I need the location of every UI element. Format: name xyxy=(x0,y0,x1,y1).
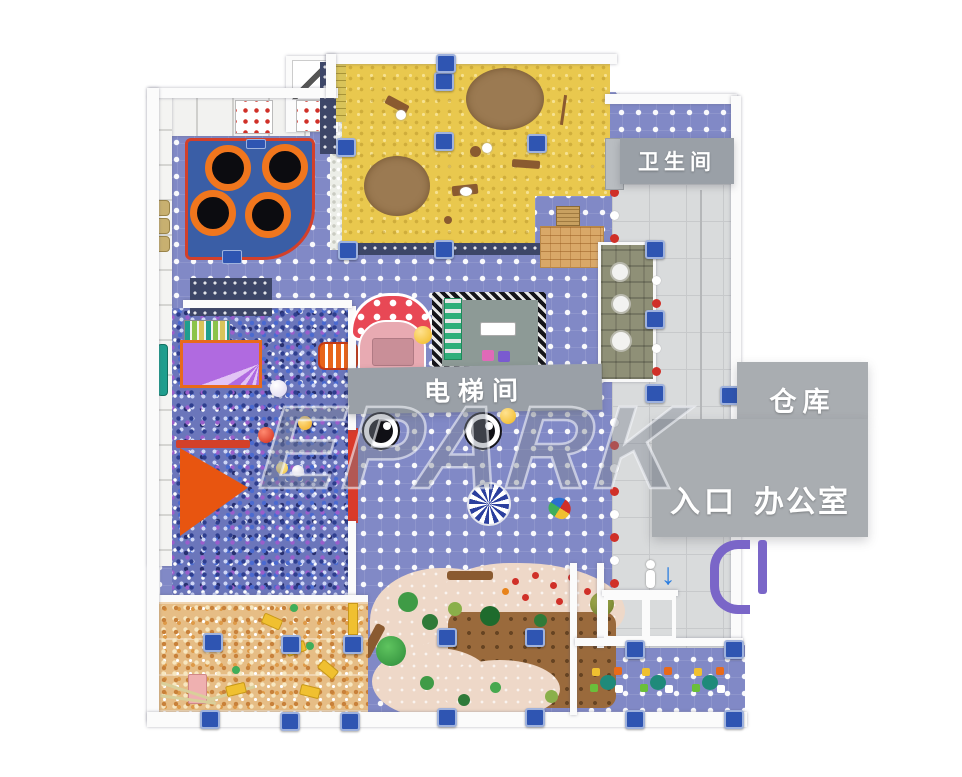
top-wall-right xyxy=(605,94,737,104)
yellow-chick xyxy=(500,408,516,424)
pillar xyxy=(437,628,457,647)
entrance-room-2 xyxy=(646,596,676,640)
tree-5 xyxy=(480,606,500,626)
top-wall-left xyxy=(148,88,338,98)
mushroom-window xyxy=(372,338,414,366)
orange-fruit xyxy=(502,588,509,595)
tree-8 xyxy=(420,676,434,690)
wall-dot xyxy=(610,418,619,427)
tree-6 xyxy=(534,614,547,627)
candy-yellow-strip xyxy=(348,603,358,635)
warehouse-label: 仓库 xyxy=(770,380,836,419)
toddler-box-pink xyxy=(482,350,494,361)
toddler-box-purple xyxy=(498,351,510,362)
wall-dot xyxy=(610,533,619,542)
pillar xyxy=(281,635,301,654)
apple-7 xyxy=(556,598,563,605)
pillar xyxy=(527,134,547,153)
apple-5 xyxy=(584,588,591,595)
pillar xyxy=(645,240,665,259)
wall-dot xyxy=(610,234,619,243)
pillar xyxy=(434,132,454,151)
restroom-band: 卫生间 xyxy=(620,138,734,184)
big-ball-red xyxy=(258,427,274,443)
tree-1 xyxy=(398,592,418,612)
yellow-ball-by-house xyxy=(414,326,432,344)
googly-eye-right xyxy=(464,412,502,450)
activity-table-1 xyxy=(590,666,626,698)
candy-dot-green-1 xyxy=(232,666,240,674)
sand-chair-2 xyxy=(482,143,492,153)
climb-panel xyxy=(190,278,272,316)
pillar xyxy=(434,240,454,259)
tree-3 xyxy=(376,636,406,666)
ball-pit-right-wall-2 xyxy=(348,521,356,599)
sink-1 xyxy=(610,262,630,282)
ball-pit-top-wall xyxy=(183,300,352,308)
elevator-label: 电梯间 xyxy=(424,370,527,409)
apple-2 xyxy=(532,572,539,579)
wall-dot xyxy=(652,299,661,308)
pillar xyxy=(436,54,456,73)
pillar xyxy=(645,310,665,329)
apple-3 xyxy=(550,582,557,589)
office-entrance-block: 入口 办公室 xyxy=(652,419,868,537)
pillar xyxy=(625,640,645,659)
activity-table-3 xyxy=(692,666,728,698)
wall-dot xyxy=(652,276,661,285)
entrance-arrow-down: ↓ xyxy=(658,558,678,592)
pillar xyxy=(645,384,665,403)
wood-plank xyxy=(447,571,493,580)
entrance-figure-body xyxy=(646,570,655,588)
pillar xyxy=(437,708,457,727)
pinwheel xyxy=(467,482,511,526)
big-ball-white xyxy=(270,380,287,397)
tree-11 xyxy=(545,690,558,703)
red-wall-strip xyxy=(348,428,358,523)
wall-dot xyxy=(610,441,619,450)
tree-2 xyxy=(422,614,438,630)
activity-table-2 xyxy=(640,666,676,698)
pillar xyxy=(338,241,358,260)
wall-dot xyxy=(652,344,661,353)
rest-mat xyxy=(540,226,604,268)
ball-yellow-2 xyxy=(276,462,288,474)
top-step-wall xyxy=(326,54,336,98)
entrance-room-1 xyxy=(604,596,646,640)
blob-right-wall-2 xyxy=(597,563,604,648)
wall-dot xyxy=(610,464,619,473)
googly-eye-left xyxy=(362,412,400,450)
pillar xyxy=(525,708,545,727)
top-wall-sand xyxy=(326,54,617,64)
sand-toy xyxy=(444,216,452,224)
wall-dot xyxy=(610,487,619,496)
pillar xyxy=(340,712,360,731)
slide-frame-red xyxy=(176,440,250,448)
sand-pit-large xyxy=(466,68,544,130)
wall-dot xyxy=(610,579,619,588)
office-label: 办公室 xyxy=(754,477,850,521)
apple-6 xyxy=(522,594,529,601)
sand-stool xyxy=(470,146,481,157)
pillar xyxy=(203,633,223,652)
restroom-label: 卫生间 xyxy=(638,146,716,176)
pillar xyxy=(525,628,545,647)
wall-dot xyxy=(652,367,661,376)
trampoline-3 xyxy=(190,190,236,236)
entrance-gate xyxy=(710,540,750,614)
elevator-band: 电梯间 xyxy=(348,364,603,414)
toddler-sign xyxy=(480,322,516,336)
cubby-box xyxy=(235,100,273,134)
wall-dot xyxy=(610,510,619,519)
apple-1 xyxy=(512,578,519,585)
tree-10 xyxy=(490,682,501,693)
pillar xyxy=(336,138,356,157)
entrance-gate-post xyxy=(758,540,767,594)
pillar xyxy=(280,712,300,731)
pillar xyxy=(625,710,645,729)
sand-pit-small xyxy=(364,156,430,216)
floor-plan-canvas: 电梯间 卫生间 ↓ 仓库 入口 办公室 xyxy=(0,0,962,777)
pillar xyxy=(343,635,363,654)
toddler-ladder xyxy=(444,298,462,360)
candy-dot-green-2 xyxy=(306,642,314,650)
sand-chair xyxy=(396,110,406,120)
wall-dot xyxy=(610,556,619,565)
fan-slide-purple xyxy=(180,340,262,388)
sand-chair-3 xyxy=(460,187,472,196)
pillar xyxy=(200,710,220,729)
trampoline-1 xyxy=(205,145,251,191)
wall-dot xyxy=(610,211,619,220)
tree-4 xyxy=(448,602,462,616)
candy-dot-green-3 xyxy=(290,604,298,612)
entrance-label: 入口 xyxy=(670,477,738,521)
big-ball-yellow xyxy=(298,416,312,430)
entrance-figure xyxy=(646,560,655,569)
warehouse-block: 仓库 xyxy=(737,362,868,419)
pillar xyxy=(724,640,744,659)
left-wall xyxy=(147,88,159,722)
mat-step-top xyxy=(246,139,266,149)
pillar xyxy=(724,710,744,729)
trampoline-2 xyxy=(262,144,308,190)
trampoline-4 xyxy=(245,192,291,238)
pillar xyxy=(434,72,454,91)
wood-pallet xyxy=(556,206,580,226)
mat-step-bottom xyxy=(222,250,242,264)
sink-2 xyxy=(611,294,631,314)
tree-9 xyxy=(458,694,470,706)
sink-3 xyxy=(610,330,632,352)
ball-white-2 xyxy=(292,465,304,477)
